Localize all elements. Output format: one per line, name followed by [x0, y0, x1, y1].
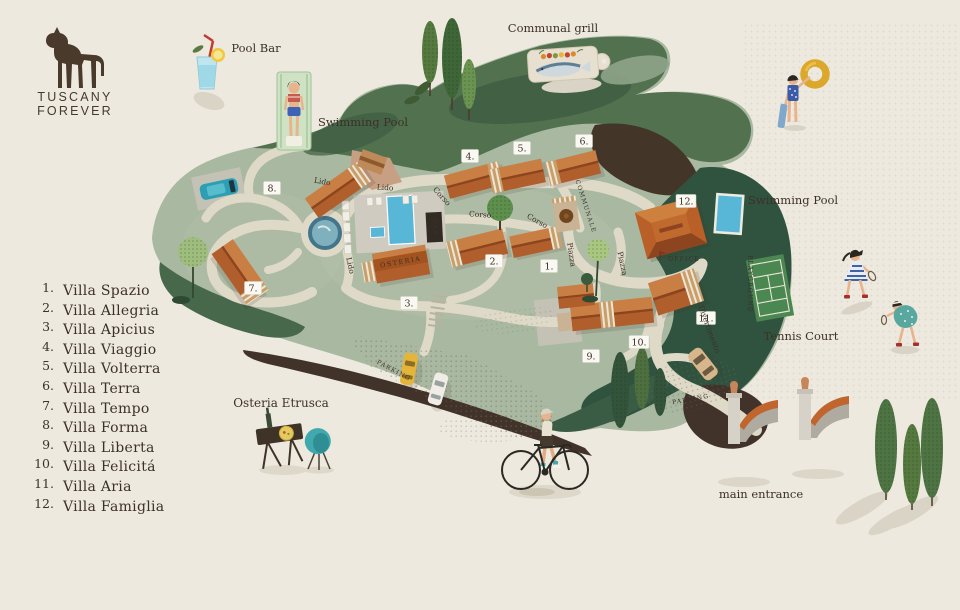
fountain-pond: [310, 218, 340, 248]
communal-grill-label: Communal grill: [508, 21, 599, 35]
legend-name: Villa Spazio: [63, 283, 150, 299]
svg-text:5.: 5.: [517, 144, 526, 155]
legend-item-12: 12.Villa Famiglia: [28, 499, 164, 519]
logo-line-2: FOREVER: [10, 104, 140, 118]
legend-num: 3.: [28, 319, 54, 334]
legend-num: 6.: [28, 378, 54, 393]
swimming-pool-second: [715, 194, 744, 234]
svg-text:1.: 1.: [544, 262, 553, 273]
resort-map-page: BAR: [0, 0, 960, 610]
legend-num: 8.: [28, 417, 54, 432]
legend-num: 2.: [28, 300, 54, 315]
legend-name: Villa Felicitá: [63, 459, 156, 475]
legend-name: Villa Volterra: [63, 361, 161, 377]
legend-num: 7.: [28, 398, 54, 413]
etruscan-horse-icon: [40, 26, 110, 90]
svg-text:9.: 9.: [586, 352, 595, 363]
logo-line-1: TUSCANY: [10, 90, 140, 104]
villa-legend: 1.Villa Spazio 2.Villa Allegria 3.Villa …: [28, 283, 164, 518]
badge-3: 3.: [401, 297, 418, 310]
osteria-etrusca-label: Osteria Etrusca: [233, 396, 329, 410]
badge-12: 12.: [676, 195, 696, 208]
legend-num: 5.: [28, 358, 54, 373]
badge-2: 2.: [486, 255, 503, 268]
brand-logo: TUSCANY FOREVER: [10, 26, 140, 118]
svg-text:8.: 8.: [267, 184, 276, 195]
svg-text:7.: 7.: [248, 284, 257, 295]
bar-roof-label: BAR: [431, 219, 439, 236]
svg-text:3.: 3.: [404, 299, 413, 310]
legend-name: Villa Viaggio: [63, 342, 157, 358]
legend-name: Villa Famiglia: [63, 499, 164, 515]
legend-name: Villa Aria: [63, 479, 132, 495]
badge-10: 10.: [629, 336, 649, 349]
cocktail-icon: [191, 35, 226, 114]
swimming-pool-left-label: Swimming Pool: [318, 115, 408, 129]
legend-num: 10.: [28, 456, 54, 471]
legend-num: 11.: [28, 476, 54, 491]
badge-5: 5.: [514, 142, 531, 155]
legend-name: Villa Tempo: [63, 401, 150, 417]
svg-text:6.: 6.: [579, 137, 588, 148]
badge-8: 8.: [264, 182, 281, 195]
legend-num: 9.: [28, 437, 54, 452]
swimming-pool-main: [387, 195, 415, 244]
sunbather-figure: [277, 72, 311, 150]
road-label-lido-2: Lido: [377, 182, 395, 192]
svg-text:4.: 4.: [465, 152, 474, 163]
badge-7: 7.: [245, 282, 262, 295]
badge-1: 1.: [541, 260, 558, 273]
badge-9: 9.: [583, 350, 600, 363]
legend-name: Villa Allegria: [63, 303, 159, 319]
main-entrance-label: main entrance: [719, 487, 804, 501]
cypress-group-entrance: [832, 398, 943, 540]
svg-text:10.: 10.: [631, 338, 646, 349]
main-pool-complex: BAR: [342, 191, 447, 254]
badge-4: 4.: [462, 150, 479, 163]
svg-text:12.: 12.: [678, 197, 693, 208]
legend-name: Villa Forma: [63, 420, 148, 436]
road-label-corso-2: Corso: [469, 209, 492, 220]
badge-6: 6.: [576, 135, 593, 148]
legend-name: Villa Apicius: [63, 322, 155, 338]
office-label: OFFICE: [668, 256, 700, 263]
kiddie-pool: [370, 227, 385, 238]
osteria-etrusca-set: [253, 403, 334, 475]
svg-text:2.: 2.: [489, 257, 498, 268]
pool-bar-label: Pool Bar: [231, 41, 281, 55]
swimming-pool-right-label: Swimming Pool: [748, 193, 838, 207]
legend-num: 1.: [28, 280, 54, 295]
legend-num: 4.: [28, 339, 54, 354]
communal-pavilion: [552, 195, 580, 232]
legend-name: Villa Liberta: [63, 440, 155, 456]
legend-num: 12.: [28, 496, 54, 511]
legend-name: Villa Terra: [63, 381, 141, 397]
tennis-court-label: Tennis Court: [764, 329, 839, 343]
playground-label: PLAYGROUND: [746, 255, 753, 312]
acapulco-chair: [302, 425, 334, 473]
